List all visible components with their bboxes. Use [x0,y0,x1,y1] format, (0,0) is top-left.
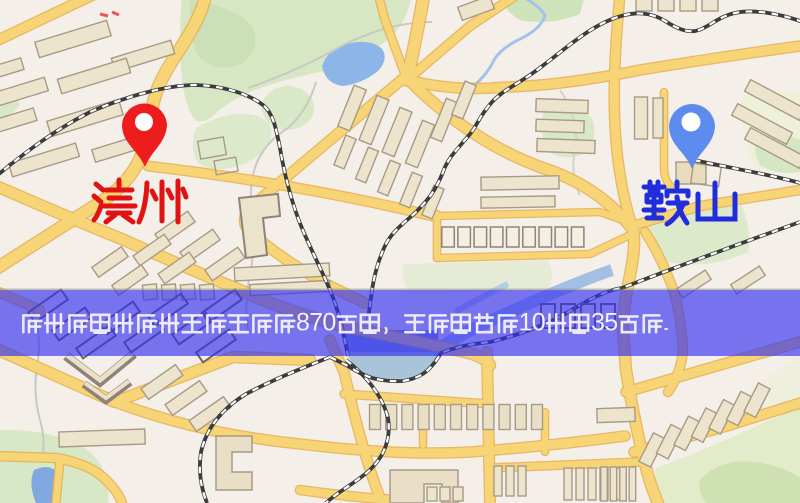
svg-text:8: 8 [296,309,310,337]
svg-text:1: 1 [519,309,533,337]
svg-text:7: 7 [309,309,323,337]
svg-text:0: 0 [322,309,336,337]
svg-text:3: 3 [591,309,605,337]
svg-text:0: 0 [532,309,546,337]
svg-text:5: 5 [604,309,618,337]
